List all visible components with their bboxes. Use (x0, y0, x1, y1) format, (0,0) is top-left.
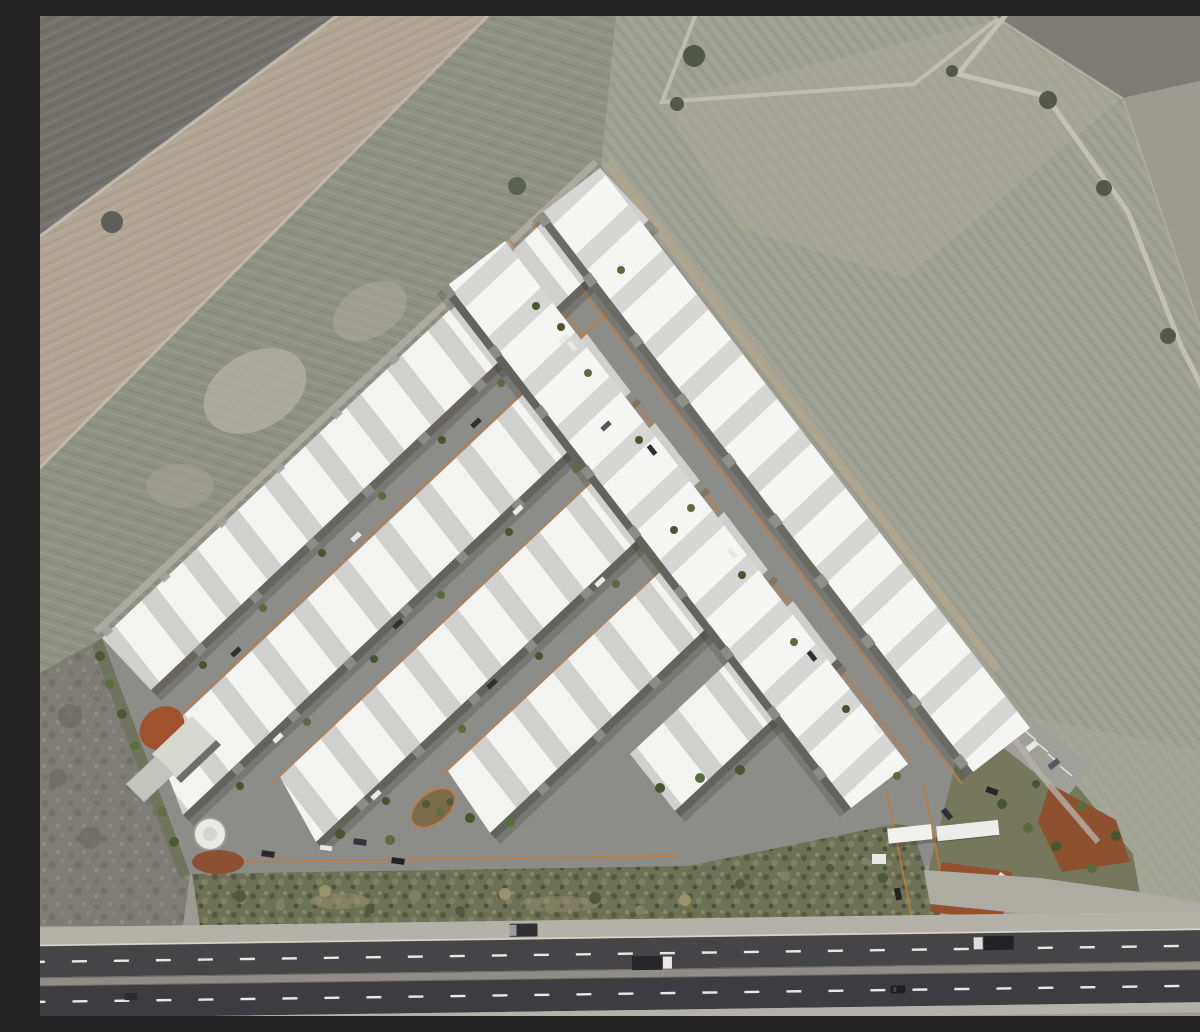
tank-apron (192, 850, 244, 874)
aerial-render-canvas (40, 16, 1200, 1016)
highway (40, 910, 1200, 1016)
vehicle-van (509, 923, 537, 936)
vehicle-truck (632, 956, 672, 971)
vehicle-car (890, 985, 905, 993)
sand-patch (146, 464, 214, 508)
aerial-render-figure: Top-down aerial 3D architectural renderi… (40, 16, 1200, 1016)
vehicle-truck (974, 936, 1014, 951)
guard-booth (872, 854, 886, 864)
vehicle-car (124, 993, 137, 1000)
